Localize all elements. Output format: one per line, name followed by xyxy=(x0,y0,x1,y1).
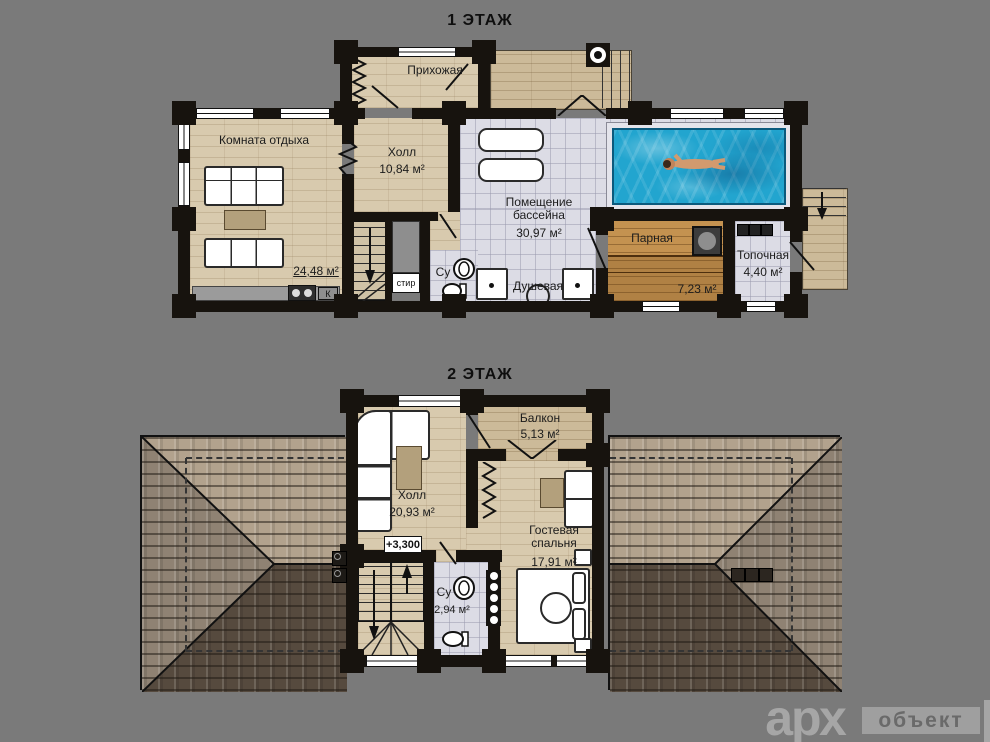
stairs-direction-arrow xyxy=(364,228,376,284)
pillow xyxy=(572,572,586,604)
room-label-wc2: Су xyxy=(434,586,454,599)
wall-segment xyxy=(342,174,354,304)
area-label-pool: 30,97 м² xyxy=(506,226,572,240)
double-door xyxy=(556,92,608,116)
stairs-direction-arrow xyxy=(368,570,380,642)
room-label-hall: Холл xyxy=(378,146,426,159)
room-label-boiler: Топочная xyxy=(733,249,793,262)
stair-railing xyxy=(479,462,499,520)
log-end xyxy=(586,443,610,467)
log-end xyxy=(472,40,496,64)
log-end xyxy=(417,649,441,673)
sofa xyxy=(204,166,284,206)
area-label-hall: 10,84 м² xyxy=(372,162,432,176)
log-end xyxy=(784,101,808,125)
wall-segment xyxy=(420,221,430,301)
logo-box: объект xyxy=(862,707,980,734)
room-label-bedroom: Гостевая спальня xyxy=(506,524,602,550)
window xyxy=(746,301,776,312)
log-end xyxy=(586,649,610,673)
wall-segment xyxy=(466,449,478,528)
table xyxy=(540,478,564,508)
room-label-pool: Помещение бассейна xyxy=(498,196,580,222)
stove-burner xyxy=(292,289,300,297)
pillow xyxy=(572,608,586,640)
area-label-bedroom: 17,91 м² xyxy=(508,555,600,569)
window xyxy=(178,124,190,150)
wall-segment xyxy=(448,119,460,212)
sauna-stove-top xyxy=(698,232,716,250)
round-pillow xyxy=(540,592,572,624)
area-label-balcony: 5,13 м² xyxy=(510,427,570,441)
stove-burner xyxy=(304,289,312,297)
log-end xyxy=(590,294,614,318)
coffee-table xyxy=(224,210,266,230)
window xyxy=(744,108,784,119)
room-label-steam: Парная xyxy=(626,232,678,245)
wall-segment xyxy=(346,395,358,667)
shower-drain xyxy=(575,283,580,288)
wall-vent-circle xyxy=(334,553,341,560)
door-leaf xyxy=(438,540,458,566)
log-end xyxy=(334,40,358,64)
window xyxy=(280,108,330,119)
logo-bar xyxy=(984,700,990,742)
folding-door xyxy=(336,140,358,178)
log-end xyxy=(340,389,364,413)
room-label-hallway: Прихожая xyxy=(396,64,474,77)
door-leaf xyxy=(438,214,458,240)
sink xyxy=(452,576,476,600)
roof-ridges xyxy=(610,437,842,692)
dashed-outline xyxy=(185,458,187,651)
area-label-lounge: 24,48 м² xyxy=(286,264,346,278)
log-end xyxy=(460,389,484,413)
log-end xyxy=(442,101,466,125)
log-end xyxy=(442,294,466,318)
log-end xyxy=(172,294,196,318)
room-label-shower: Душевая xyxy=(510,280,566,293)
washer-label: стир xyxy=(392,273,420,293)
room-label-hall2: Холл xyxy=(388,489,436,502)
swimmer xyxy=(655,148,735,180)
area-label-wc2: 2,94 м² xyxy=(428,604,476,616)
sink xyxy=(452,258,476,280)
lounge-chair xyxy=(478,128,544,152)
wall-vent-circle xyxy=(334,570,341,577)
closet xyxy=(392,221,420,273)
chimney-vent xyxy=(745,568,759,582)
log-end xyxy=(784,294,808,318)
log-end xyxy=(482,649,506,673)
log-end xyxy=(717,294,741,318)
double-door xyxy=(506,440,558,462)
log-end xyxy=(586,389,610,413)
door-leaf xyxy=(370,84,400,110)
window xyxy=(498,655,552,667)
chimney-vent xyxy=(759,568,773,582)
dashed-outline xyxy=(791,458,793,651)
shower-drain xyxy=(489,283,494,288)
boiler-unit xyxy=(761,224,773,236)
floor2-title: 2 ЭТАЖ xyxy=(415,366,545,384)
floor1-title: 1 ЭТАЖ xyxy=(415,12,545,30)
sofa xyxy=(204,238,284,268)
door-leaf xyxy=(584,226,610,272)
area-label-steam: 7,23 м² xyxy=(672,282,722,296)
stairs-direction-arrow xyxy=(401,564,413,594)
wall-segment xyxy=(178,301,802,312)
towel-rack xyxy=(486,570,501,626)
chimney-vent xyxy=(731,568,745,582)
lounge-chair xyxy=(478,158,544,182)
sauna-bench-edge xyxy=(608,272,723,273)
room-label-balcony: Балкон xyxy=(508,412,572,425)
area-label-hall2: 20,93 м² xyxy=(366,505,458,519)
window xyxy=(178,162,190,206)
roof-ridges xyxy=(142,437,347,692)
loveseat xyxy=(564,470,594,528)
door-leaf xyxy=(466,412,492,450)
log-end xyxy=(628,101,652,125)
window xyxy=(398,47,456,57)
window xyxy=(670,108,724,119)
log-end xyxy=(334,101,358,125)
dashed-outline xyxy=(610,457,791,459)
log-end xyxy=(784,207,808,231)
room-label-wc: Су xyxy=(434,266,452,279)
area-label-boiler: 4,40 м² xyxy=(738,265,788,279)
wall-segment xyxy=(385,221,392,301)
log-end xyxy=(334,294,358,318)
boiler-unit xyxy=(737,224,749,236)
log-end xyxy=(340,649,364,673)
window xyxy=(556,655,590,667)
porch-column-dot xyxy=(594,51,602,59)
window xyxy=(642,301,680,312)
plan-canvas: 1 ЭТАЖ К стир xyxy=(0,0,990,742)
log-end xyxy=(172,207,196,231)
dashed-outline xyxy=(186,650,344,652)
toilet xyxy=(442,630,470,648)
wall-segment xyxy=(346,550,502,562)
coffee-table xyxy=(396,446,422,490)
wall-segment xyxy=(596,209,802,221)
stairs-direction-arrow xyxy=(816,192,828,220)
boiler-unit xyxy=(749,224,761,236)
window xyxy=(196,108,254,119)
log-end xyxy=(172,101,196,125)
dashed-outline xyxy=(610,650,791,652)
room-label-lounge: Комната отдыха xyxy=(204,134,324,147)
elevation-mark: +3,300 xyxy=(384,536,422,553)
logo-text: арх xyxy=(752,696,858,740)
window xyxy=(398,395,462,407)
log-end xyxy=(590,207,614,231)
dashed-outline xyxy=(186,457,344,459)
